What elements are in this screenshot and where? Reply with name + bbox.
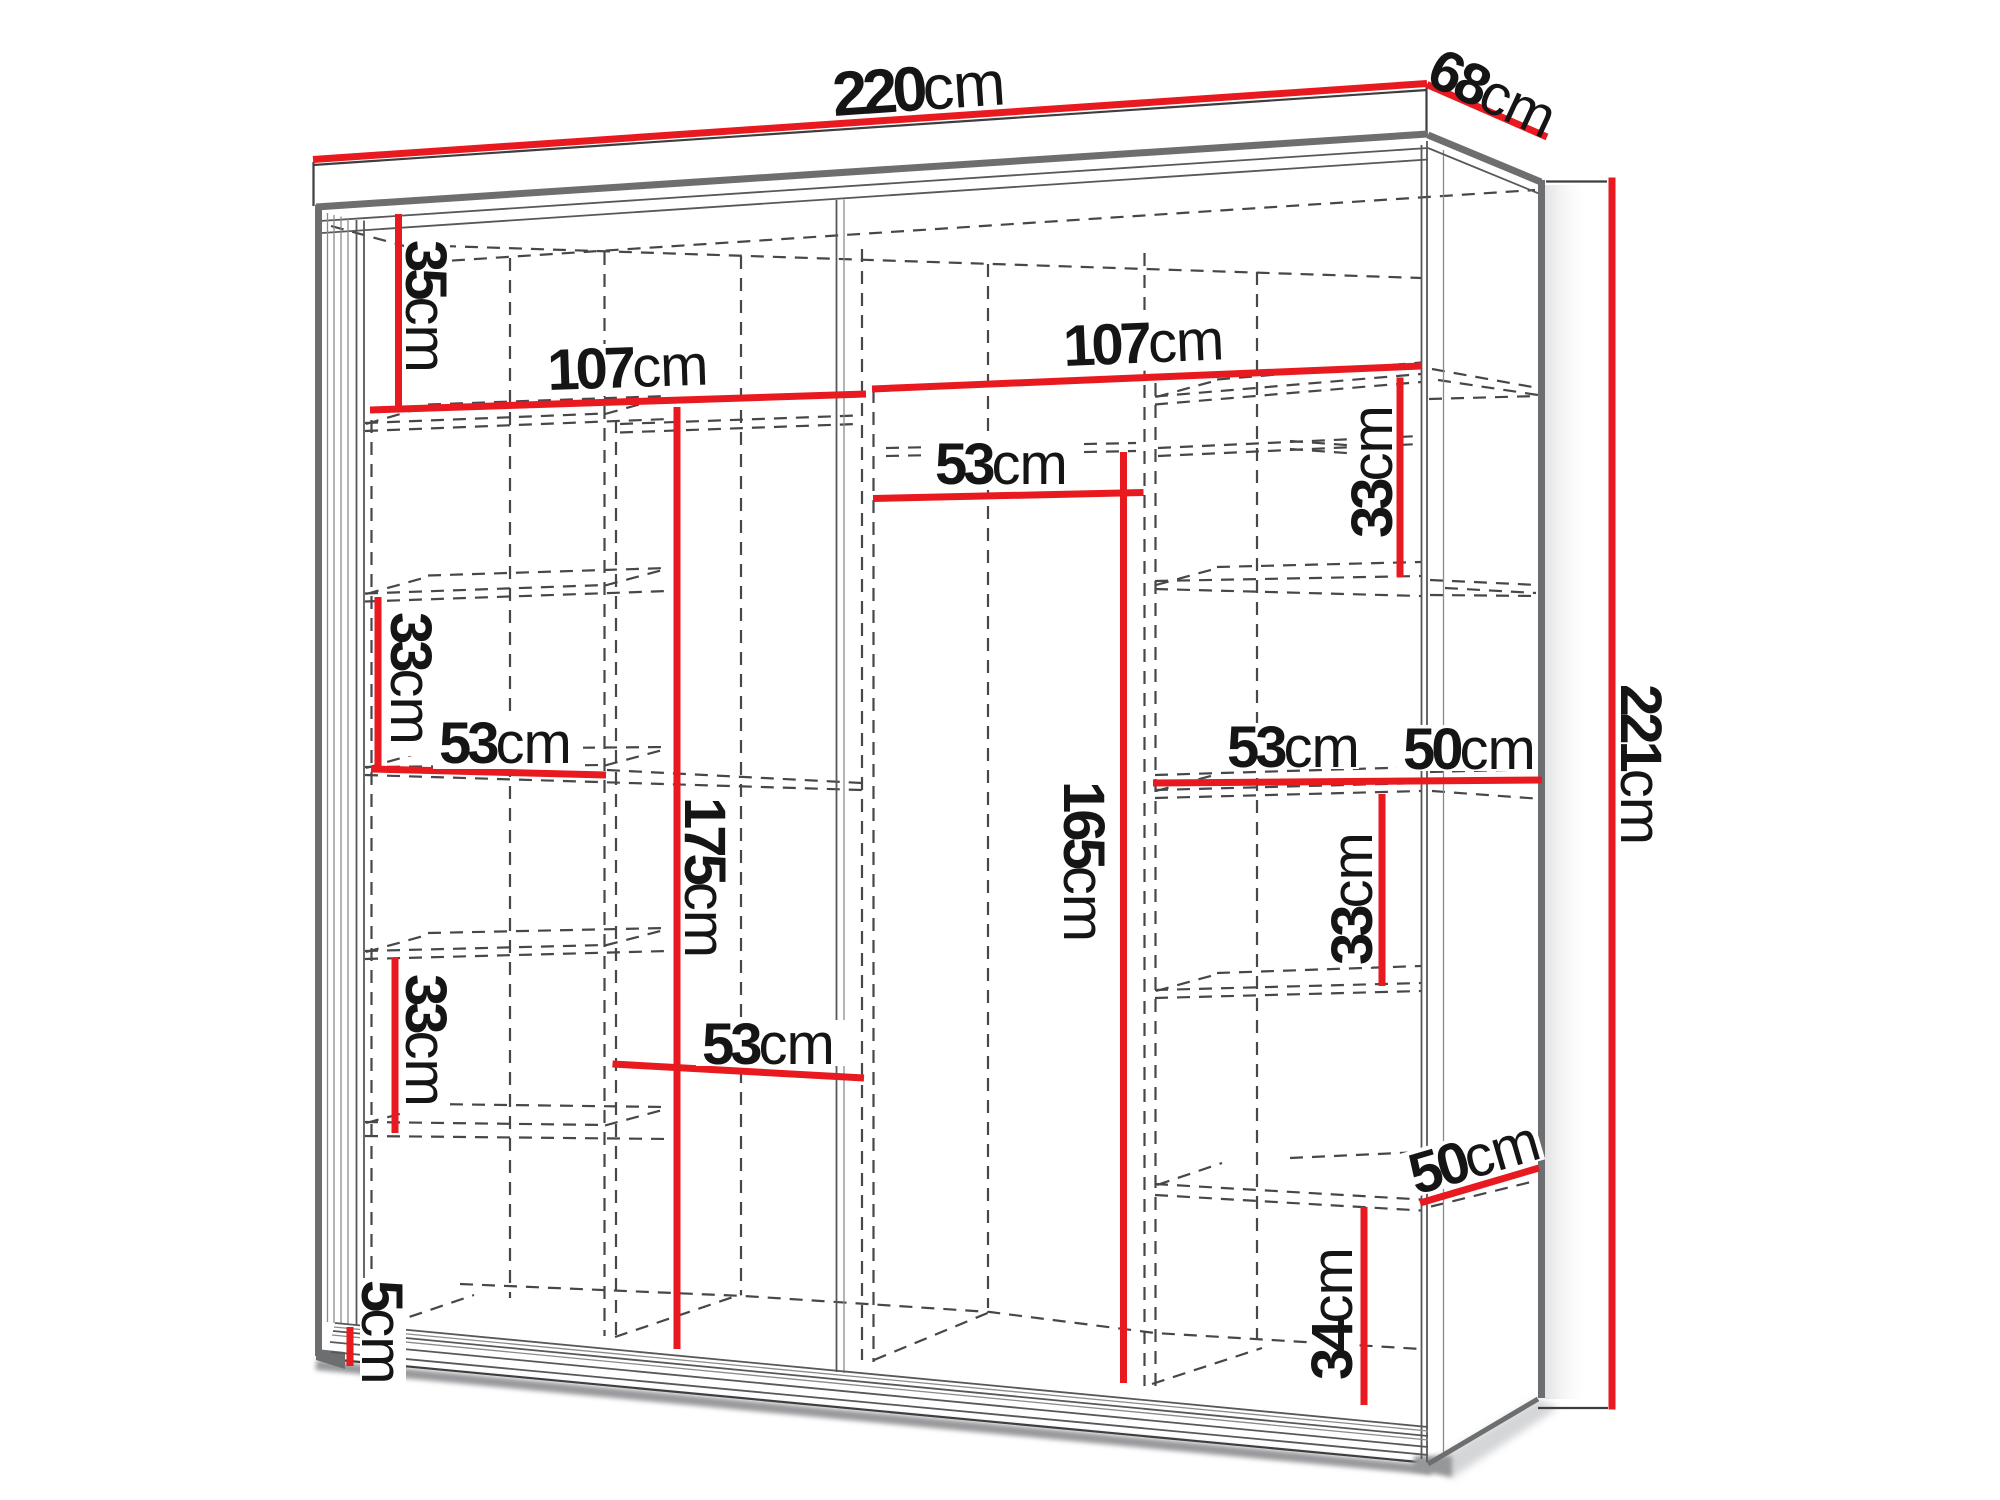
svg-text:34cm: 34cm [1300,1248,1365,1380]
svg-text:53cm: 53cm [935,432,1067,497]
svg-text:165cm: 165cm [1051,781,1116,941]
svg-text:33cm: 33cm [393,974,458,1106]
svg-text:50cm: 50cm [1403,717,1535,782]
svg-text:33cm: 33cm [1340,406,1405,538]
svg-text:35cm: 35cm [393,240,458,372]
svg-text:221cm: 221cm [1608,684,1673,844]
svg-text:33cm: 33cm [1320,833,1385,965]
svg-text:53cm: 53cm [702,1012,834,1077]
svg-text:33cm: 33cm [378,612,443,744]
svg-text:107cm: 107cm [546,332,708,403]
svg-text:53cm: 53cm [1227,715,1359,780]
svg-text:53cm: 53cm [439,711,571,776]
svg-text:107cm: 107cm [1062,307,1225,379]
svg-text:220cm: 220cm [830,48,1006,130]
svg-text:175cm: 175cm [672,797,737,957]
svg-text:5cm: 5cm [349,1280,414,1384]
